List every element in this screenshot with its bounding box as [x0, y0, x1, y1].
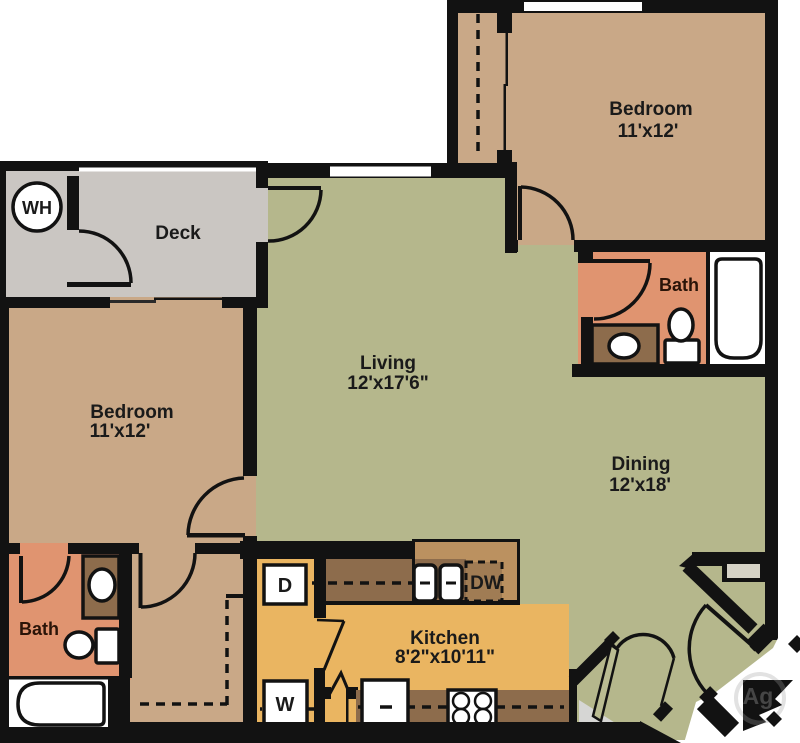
svg-text:W: W — [276, 694, 295, 716]
svg-text:Ag: Ag — [743, 683, 774, 709]
svg-text:Kitchen: Kitchen — [410, 628, 480, 649]
svg-text:11'x12': 11'x12' — [618, 121, 679, 142]
svg-text:Bath: Bath — [19, 619, 59, 639]
svg-text:D: D — [278, 575, 292, 597]
svg-text:12'x17'6": 12'x17'6" — [347, 373, 428, 394]
svg-text:Dining: Dining — [611, 454, 670, 475]
svg-text:Deck: Deck — [155, 223, 201, 244]
svg-text:DW: DW — [470, 573, 502, 594]
svg-text:Bedroom: Bedroom — [90, 402, 173, 423]
svg-text:11'x12': 11'x12' — [90, 421, 151, 442]
svg-text:12'x18': 12'x18' — [609, 475, 671, 496]
svg-text:8'2"x10'11": 8'2"x10'11" — [395, 647, 495, 668]
svg-text:WH: WH — [22, 198, 52, 218]
svg-text:Bath: Bath — [659, 275, 699, 295]
svg-text:Living: Living — [360, 353, 416, 374]
svg-text:Bedroom: Bedroom — [609, 99, 692, 120]
